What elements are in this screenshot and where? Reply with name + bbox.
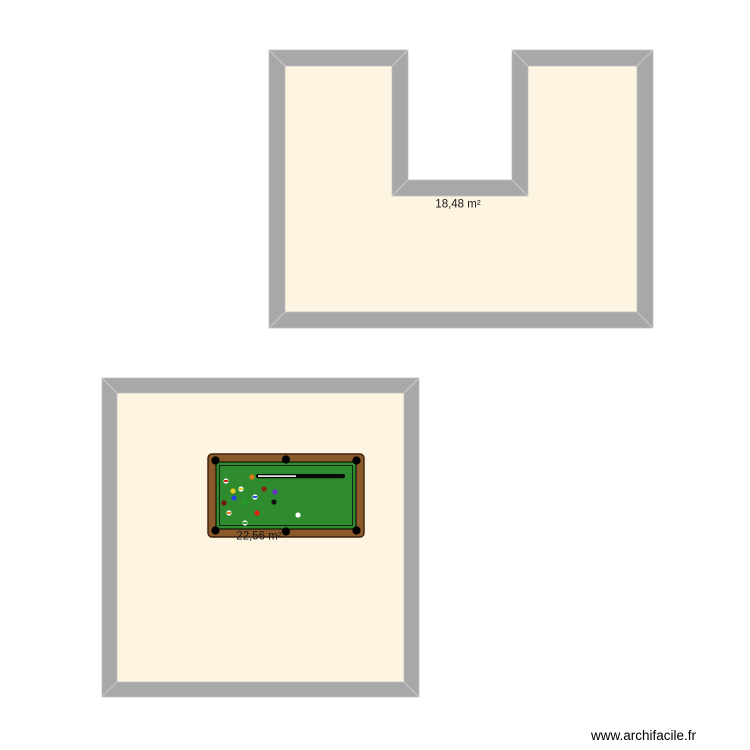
- billiard-ball: [272, 489, 277, 494]
- table-pocket: [352, 456, 360, 464]
- table-pocket: [211, 526, 219, 534]
- cue-stick: [256, 474, 345, 478]
- billiard-ball: [261, 486, 266, 491]
- table-felt: [216, 462, 356, 529]
- billiard-ball: [231, 495, 236, 500]
- room-u-shape[interactable]: 18,48 m²: [269, 50, 653, 328]
- billiard-ball: [254, 510, 259, 515]
- billiard-ball: [221, 500, 226, 505]
- room-square[interactable]: 22,56 m²: [102, 378, 419, 697]
- watermark: www.archifacile.fr: [590, 728, 697, 743]
- billiard-ball: [249, 474, 254, 479]
- floorplan-canvas[interactable]: 18,48 m²: [0, 0, 750, 750]
- billiard-ball: [230, 488, 235, 493]
- room-area-label: 18,48 m²: [435, 199, 481, 211]
- floorplan-page: 18,48 m²: [0, 0, 750, 750]
- room-area-label: 22,56 m²: [236, 531, 282, 543]
- table-pocket: [282, 455, 290, 463]
- billiard-ball: [295, 512, 300, 517]
- billiard-table[interactable]: [208, 454, 364, 537]
- table-pocket: [282, 527, 290, 535]
- billiard-ball: [271, 499, 276, 504]
- billiard-ball: [242, 500, 247, 505]
- table-pocket: [211, 456, 219, 464]
- table-pocket: [352, 526, 360, 534]
